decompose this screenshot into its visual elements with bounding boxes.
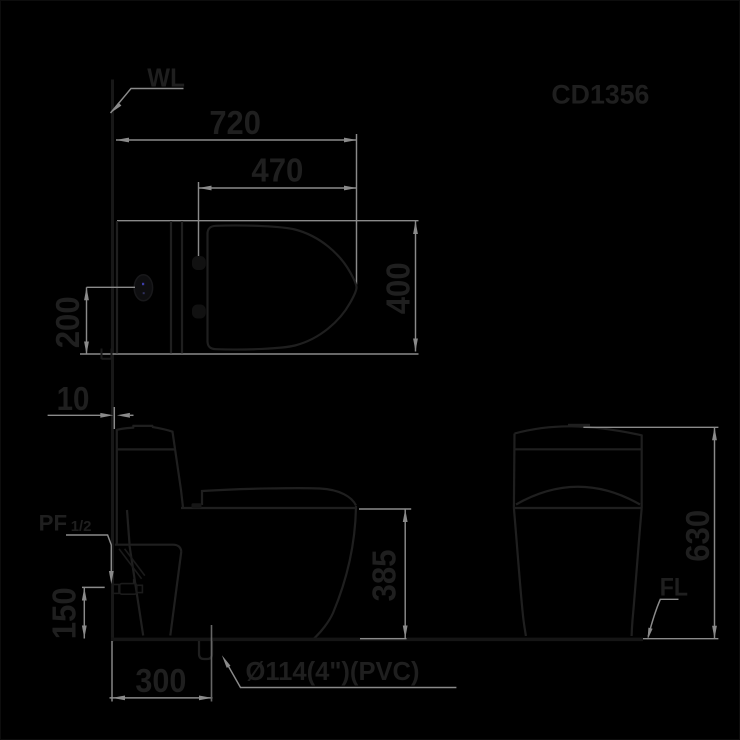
svg-text:150: 150 — [46, 587, 83, 639]
svg-text:CD1356: CD1356 — [551, 80, 649, 110]
svg-text:10: 10 — [57, 381, 90, 418]
svg-text:470: 470 — [251, 153, 303, 190]
svg-text:720: 720 — [209, 105, 261, 142]
svg-text:1/2: 1/2 — [71, 518, 92, 535]
svg-text:PF: PF — [39, 510, 68, 535]
svg-text:400: 400 — [381, 262, 418, 314]
svg-text:200: 200 — [50, 296, 87, 348]
svg-text:FL: FL — [660, 574, 688, 602]
svg-text:300: 300 — [135, 663, 186, 700]
svg-text:630: 630 — [680, 510, 717, 562]
svg-text:385: 385 — [366, 550, 403, 602]
svg-text:Ø114(4")(PVC): Ø114(4")(PVC) — [246, 658, 420, 686]
